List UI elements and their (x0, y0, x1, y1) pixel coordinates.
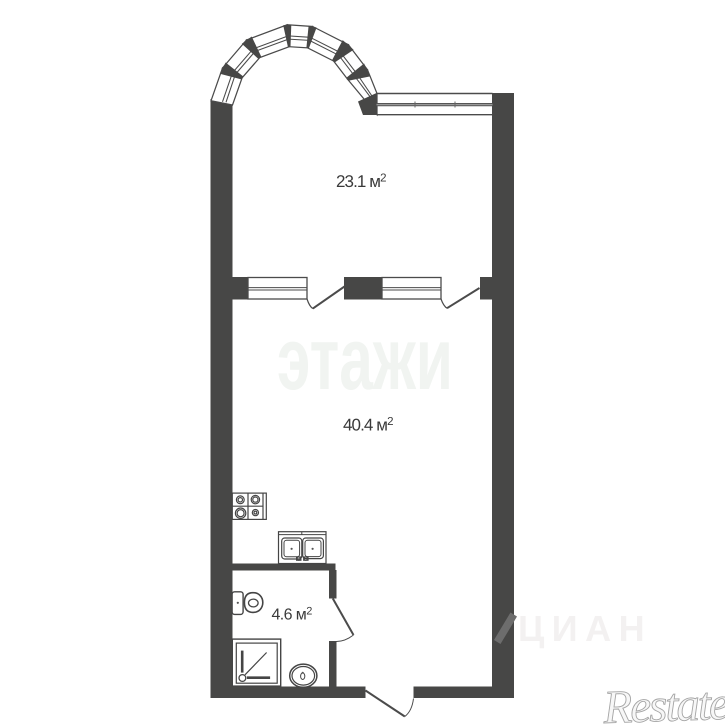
svg-text:этажи: этажи (277, 309, 453, 408)
svg-text:4.6 м2: 4.6 м2 (272, 606, 313, 624)
svg-text:Restate: Restate (602, 678, 725, 725)
svg-text:ЦИАН: ЦИАН (518, 608, 652, 649)
svg-text:23.1 м2: 23.1 м2 (336, 172, 386, 191)
svg-text:40.4 м2: 40.4 м2 (343, 416, 393, 435)
